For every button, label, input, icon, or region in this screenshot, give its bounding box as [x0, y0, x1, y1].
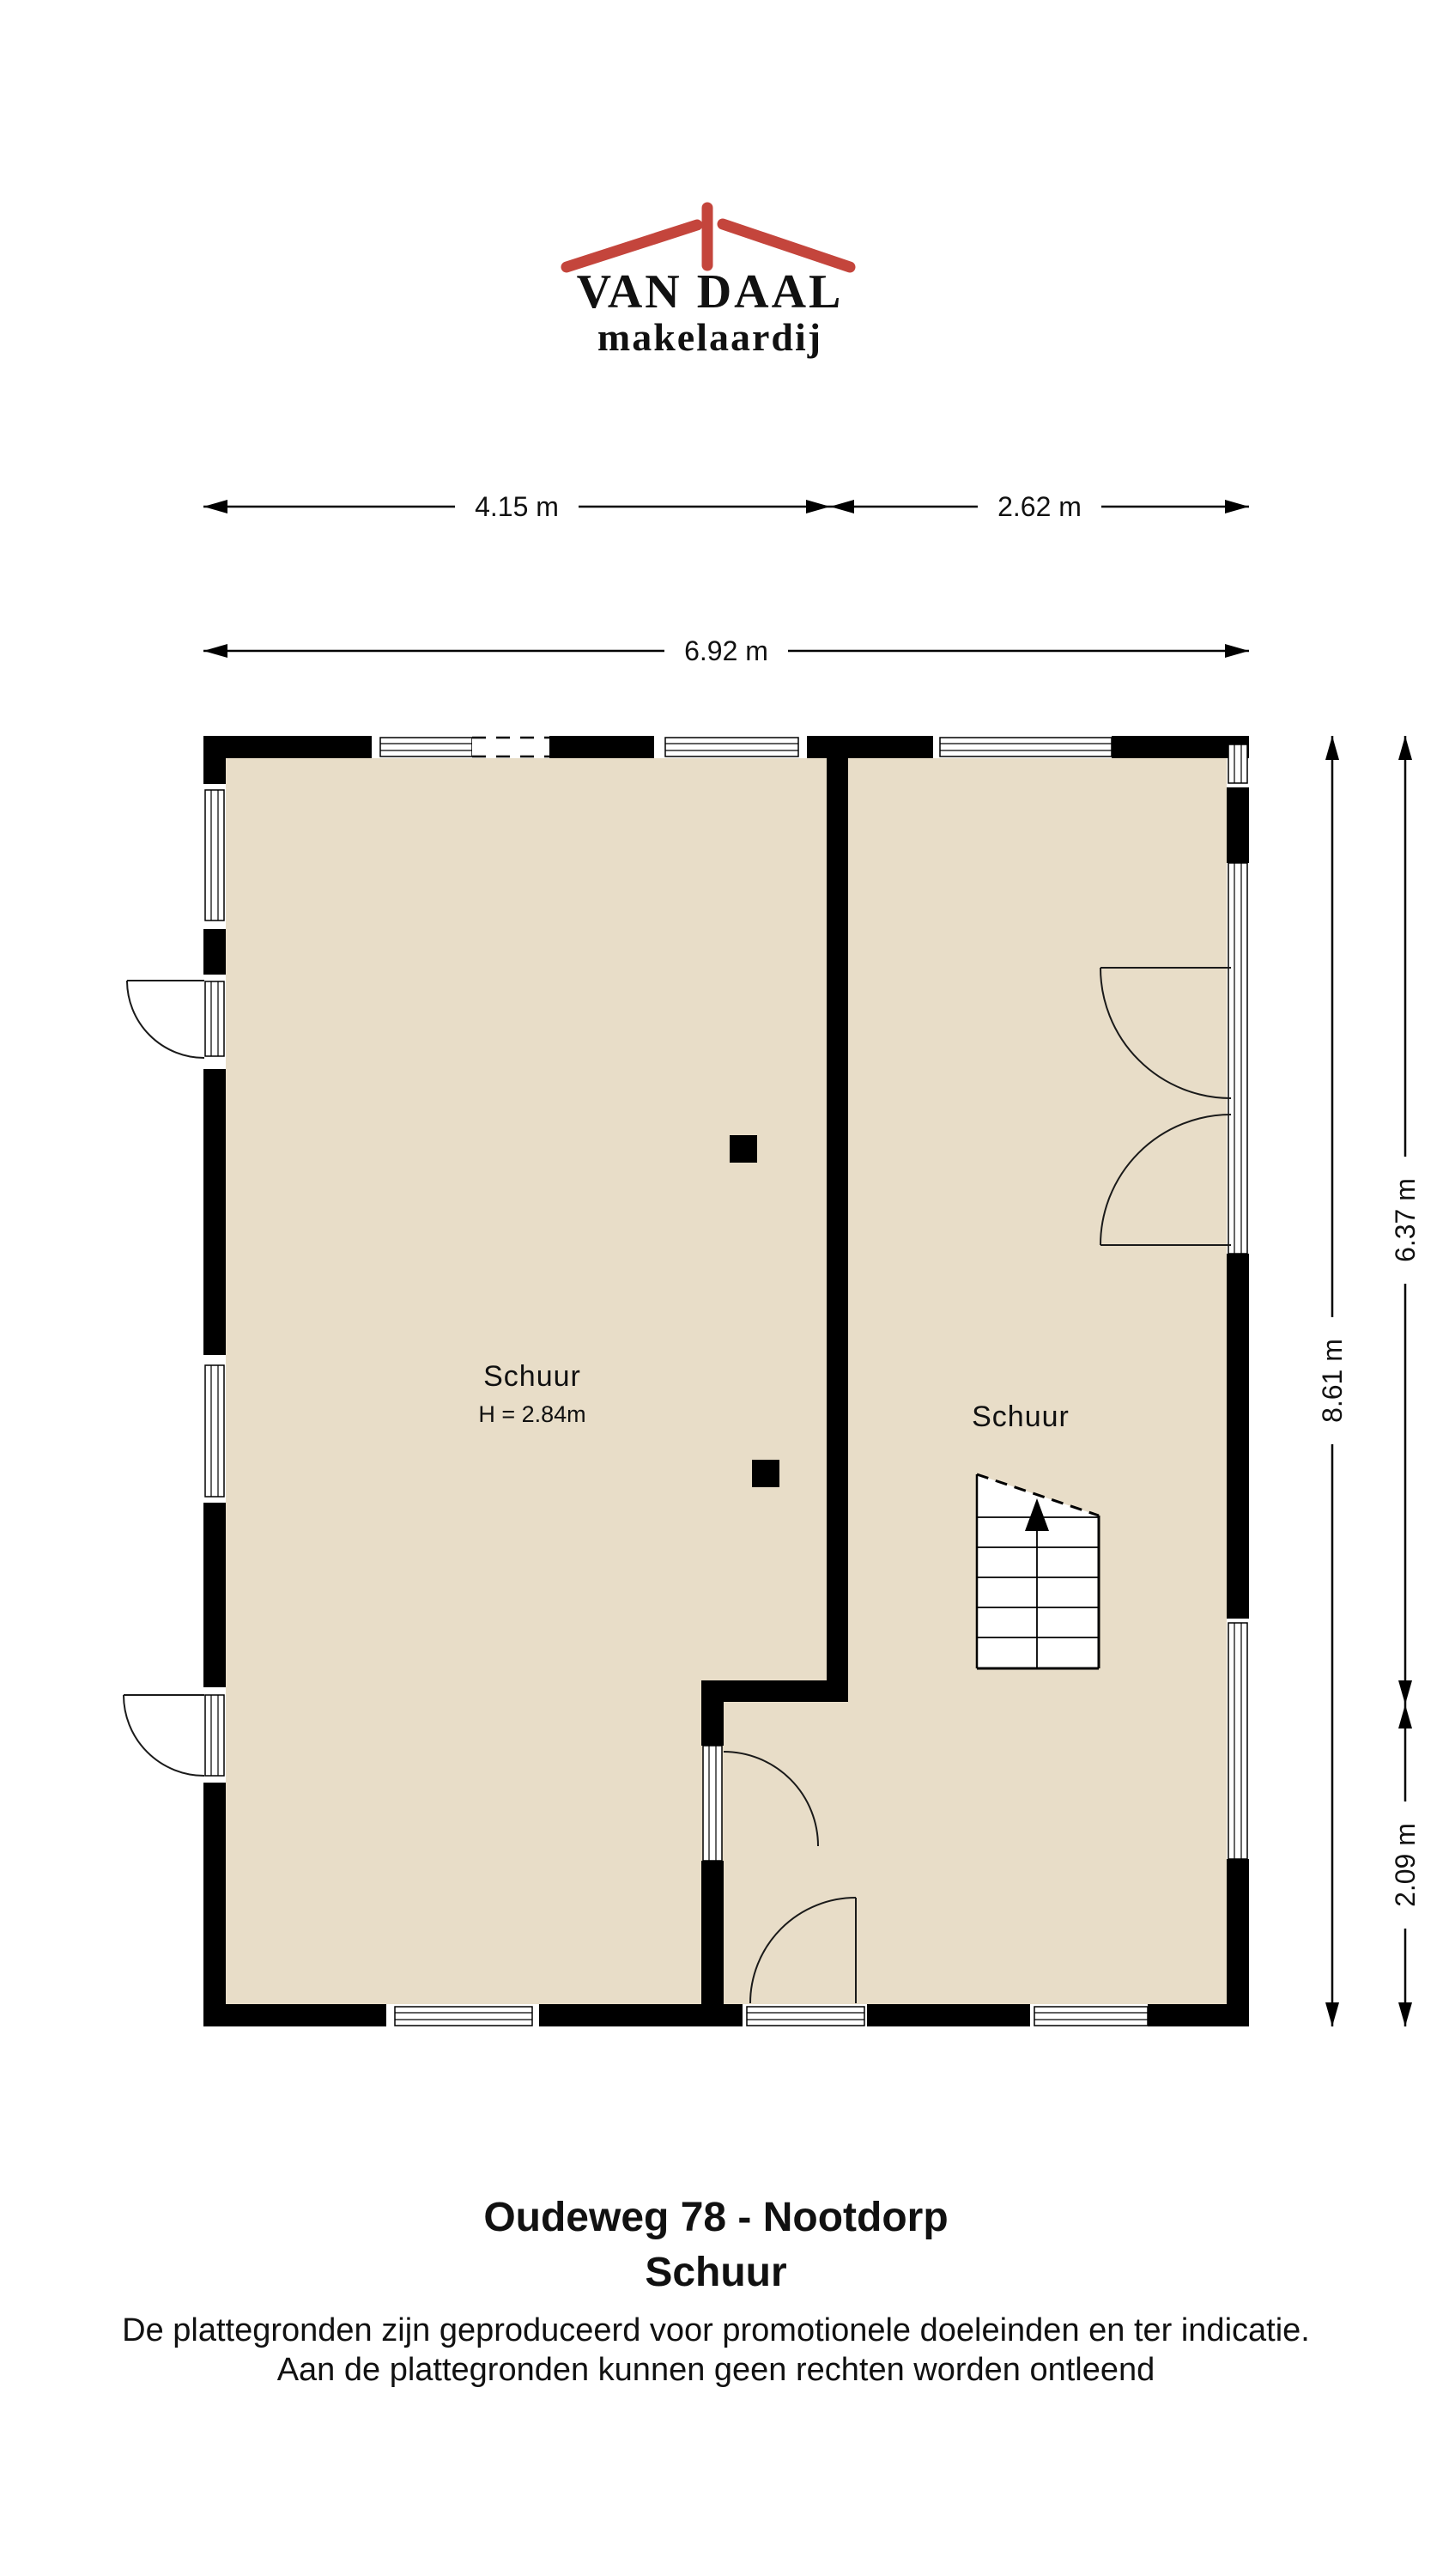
door: [127, 981, 224, 1058]
dim-label-right-full: 8.61 m: [1317, 1339, 1348, 1423]
room-height-left: H = 2.84m: [478, 1401, 585, 1427]
window: [205, 790, 224, 920]
floor-plan: Schuur H = 2.84m Schuur: [124, 736, 1249, 2026]
logo: VAN DAAL makelaardij: [567, 208, 850, 359]
logo-subtitle: makelaardij: [597, 315, 822, 359]
floorplan-page: VAN DAAL makelaardij 4.15 m 2.62 m 6.92 …: [0, 0, 1449, 2576]
window: [1228, 1623, 1247, 1859]
dim-label-top-left: 4.15 m: [475, 491, 559, 522]
dim-label-right-lower: 2.09 m: [1390, 1823, 1421, 1907]
window: [665, 738, 798, 756]
column: [730, 1135, 757, 1163]
door: [124, 1695, 224, 1776]
window: [205, 1365, 224, 1497]
floor-plan-svg: VAN DAAL makelaardij 4.15 m 2.62 m 6.92 …: [0, 0, 1449, 2576]
dim-label-top-total: 6.92 m: [684, 635, 768, 666]
window: [1228, 863, 1247, 1254]
logo-title: VAN DAAL: [577, 265, 844, 319]
footer: Oudeweg 78 - Nootdorp Schuur De plattegr…: [122, 2195, 1310, 2388]
window: [380, 738, 472, 756]
window: [1034, 2007, 1148, 2026]
dim-label-top-right: 2.62 m: [997, 491, 1082, 522]
window: [940, 738, 1112, 756]
footer-disclaimer-line2: Aan de plattegronden kunnen geen rechten…: [277, 2352, 1155, 2388]
room-label-right: Schuur: [972, 1400, 1070, 1433]
dim-label-right-upper: 6.37 m: [1390, 1178, 1421, 1262]
floor-area: [226, 758, 1227, 2004]
footer-subtitle: Schuur: [645, 2250, 786, 2295]
footer-title: Oudeweg 78 - Nootdorp: [483, 2195, 948, 2240]
window: [1228, 744, 1247, 783]
dashed-opening: [472, 736, 549, 758]
column: [752, 1460, 779, 1487]
right-dimensions: 8.61 m 6.37 m 2.09 m: [1317, 736, 1421, 2026]
footer-disclaimer-line1: De plattegronden zijn geproduceerd voor …: [122, 2312, 1310, 2348]
window: [395, 2007, 532, 2026]
roof-icon: [567, 208, 850, 267]
room-label-left: Schuur: [483, 1360, 581, 1393]
top-dimensions: 4.15 m 2.62 m 6.92 m: [203, 491, 1249, 666]
